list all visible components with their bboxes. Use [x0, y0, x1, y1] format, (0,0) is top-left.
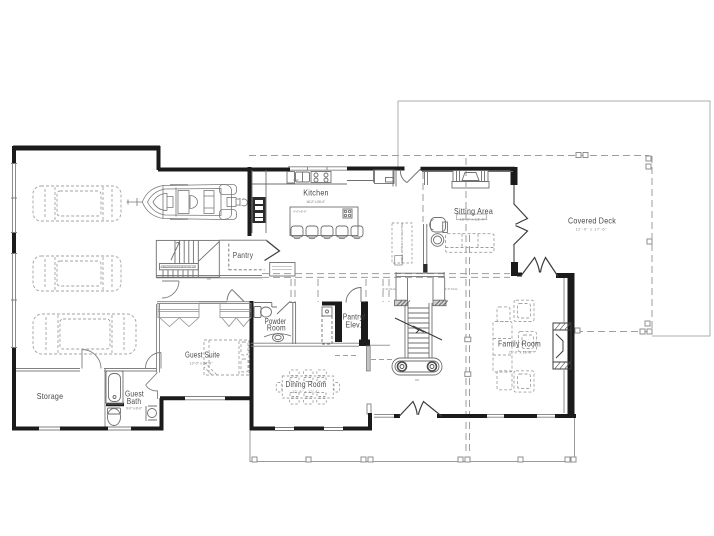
svg-text:12'-8" x 12'-4": 12'-8" x 12'-4" — [292, 389, 320, 394]
svg-text:Elev.: Elev. — [346, 320, 362, 330]
svg-text:16'-2" x 26'-4": 16'-2" x 26'-4" — [306, 199, 326, 204]
svg-text:9'-0" x 8'-0": 9'-0" x 8'-0" — [126, 406, 143, 411]
svg-text:3 BEDROOM/2 BATHS UP: 3 BEDROOM/2 BATHS UP — [160, 265, 196, 269]
svg-text:6'-0" CLG: 6'-0" CLG — [383, 287, 397, 291]
svg-text:Kitchen: Kitchen — [303, 188, 329, 198]
svg-text:21'-0" x 16'-6": 21'-0" x 16'-6" — [509, 350, 534, 355]
svg-text:Guest Suite: Guest Suite — [185, 350, 220, 360]
svg-text:DW: DW — [294, 178, 299, 182]
svg-text:Dining Room: Dining Room — [286, 379, 327, 389]
svg-text:12'-0" x 14'-0": 12'-0" x 14'-0" — [190, 361, 214, 366]
svg-text:16'-2" x 13'-0": 16'-2" x 13'-0" — [460, 217, 487, 222]
svg-text:Storage: Storage — [37, 391, 64, 401]
svg-text:12'-0" x 17'-6": 12'-0" x 17'-6" — [576, 227, 608, 232]
svg-text:Bath: Bath — [127, 396, 142, 406]
svg-text:UP: UP — [207, 277, 211, 281]
svg-text:Room: Room — [267, 323, 286, 333]
svg-text:4'-0"x9'-0": 4'-0"x9'-0" — [293, 210, 306, 214]
svg-text:6'-0" CLG: 6'-0" CLG — [445, 287, 459, 291]
svg-text:TABLE W/ BUILT-IN SEATING: TABLE W/ BUILT-IN SEATING — [400, 222, 404, 263]
svg-text:Pantry: Pantry — [233, 250, 254, 260]
svg-text:Covered Deck: Covered Deck — [568, 216, 616, 226]
svg-text:Sitting Area: Sitting Area — [454, 206, 493, 216]
svg-text:UP: UP — [415, 378, 419, 382]
svg-text:Family Room: Family Room — [498, 339, 541, 349]
